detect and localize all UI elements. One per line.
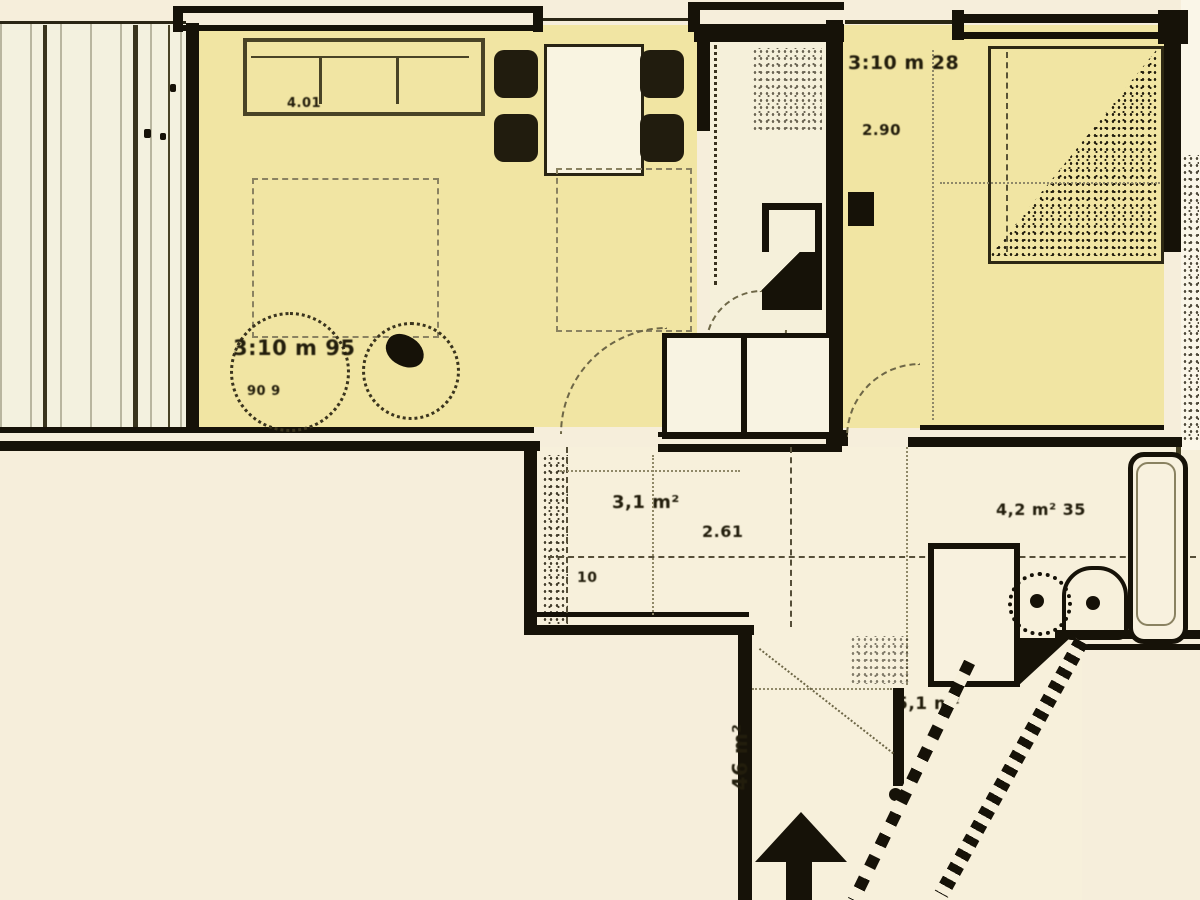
- balcony-plank-line-1: [43, 25, 47, 427]
- window-hall-top-bar: [688, 2, 844, 10]
- bath-south-wall-2: [1085, 644, 1200, 650]
- hall-dotted-line: [714, 45, 717, 285]
- bedroom-dim-label: 3:10 m 28: [848, 52, 959, 74]
- toilet-dot: [1086, 596, 1100, 610]
- window-bedroom-top-bar: [952, 14, 1168, 23]
- sofa-seat-divider-2: [396, 56, 399, 104]
- radiator-block: [848, 192, 874, 226]
- wall-mark-4: [190, 144, 197, 151]
- dining-chair-1: [494, 50, 538, 98]
- bedroom-sub-label: 2.90: [862, 121, 901, 139]
- balcony-top-line: [0, 21, 186, 24]
- floor-plan-page: 4.01 3:10 m 95 90 9 3:10 m 28 2.90 3,1 m…: [0, 0, 1200, 900]
- living-dim-label: 3:10 m 95: [233, 336, 355, 360]
- closet-right: [742, 333, 834, 439]
- step-dim-label: 10: [577, 570, 597, 586]
- entrance-guide-line: [752, 688, 892, 690]
- top-wall-line-1: [543, 18, 695, 21]
- entrance-arrow-icon: [755, 812, 847, 862]
- step-wall-hatch: [542, 455, 568, 627]
- bedroom-right-wall: [1164, 14, 1181, 252]
- living-left-wall: [186, 23, 199, 429]
- bedroom-guide-line-v: [932, 50, 934, 420]
- terrace-area-label: 46 m²: [728, 707, 752, 807]
- duct-box-solid: [762, 252, 822, 310]
- sofa: [243, 38, 485, 116]
- dimension-line-h: [548, 556, 1196, 558]
- dimension-line-v2: [790, 447, 792, 627]
- round-table-large: [230, 312, 350, 432]
- hall-top-inner-wall: [694, 28, 844, 42]
- dining-table: [544, 44, 644, 176]
- south-wall-outer: [0, 441, 540, 451]
- step-wall-vertical: [524, 441, 537, 631]
- sink-drain-dot: [1030, 594, 1044, 608]
- bedroom-guide-line-h: [940, 182, 1160, 184]
- window-living-bottom-bar: [173, 25, 541, 31]
- wall-mark-3: [160, 133, 166, 140]
- window-bedroom-left-cap: [952, 10, 964, 40]
- closet-bottom-inner: [658, 432, 838, 437]
- sofa-dim-label: 4.01: [287, 96, 321, 111]
- stair-debris-marks: [850, 636, 910, 684]
- wall-mark-1: [170, 84, 176, 92]
- bath-area-label: 4,2 m² 35: [996, 500, 1086, 519]
- sofa-back-line: [251, 56, 469, 58]
- closet-bottom-outer: [658, 444, 842, 452]
- corridor-dim-label: 2.61: [702, 522, 743, 541]
- dining-hall-wall: [697, 31, 710, 131]
- dimension-line-v1: [566, 447, 568, 623]
- coat-rack-marks: [752, 48, 822, 133]
- dining-chair-2: [494, 114, 538, 162]
- dining-chair-3: [640, 50, 684, 98]
- balcony-plank-line-2: [133, 25, 138, 427]
- duct-box-outline: [762, 203, 822, 259]
- bed-inner-line: [1006, 52, 1008, 252]
- right-wall-hatch: [1182, 155, 1199, 440]
- corridor-area-label: 3,1 m²: [612, 492, 680, 513]
- living-sub-label: 90 9: [247, 384, 281, 399]
- south-wall-inner: [0, 427, 534, 433]
- wall-mark-2: [144, 129, 151, 138]
- closet-left: [662, 333, 746, 439]
- bathtub-inner: [1136, 462, 1176, 626]
- window-bedroom-bottom-bar: [952, 32, 1168, 39]
- top-wall-line-2: [845, 20, 960, 24]
- balcony-area: [0, 23, 186, 429]
- door-leaf: [893, 688, 904, 786]
- dining-chair-4: [640, 114, 684, 162]
- bedroom-south-wall-outer: [908, 437, 1182, 447]
- bedroom-south-wall-inner: [920, 425, 1164, 430]
- window-living-top-bar: [173, 6, 541, 13]
- kitchen-counter-outline: [556, 168, 692, 332]
- window-living-left-cap: [173, 6, 183, 32]
- dimension-line-h2: [560, 470, 740, 472]
- window-living-right-cap: [533, 6, 543, 32]
- entrance-arrow-stem: [786, 862, 812, 900]
- step-wall-horizontal-outer: [524, 625, 754, 635]
- step-wall-horizontal-inner: [537, 612, 749, 617]
- dimension-line-v4: [652, 455, 654, 615]
- floor-plan: 4.01 3:10 m 95 90 9 3:10 m 28 2.90 3,1 m…: [0, 0, 1200, 900]
